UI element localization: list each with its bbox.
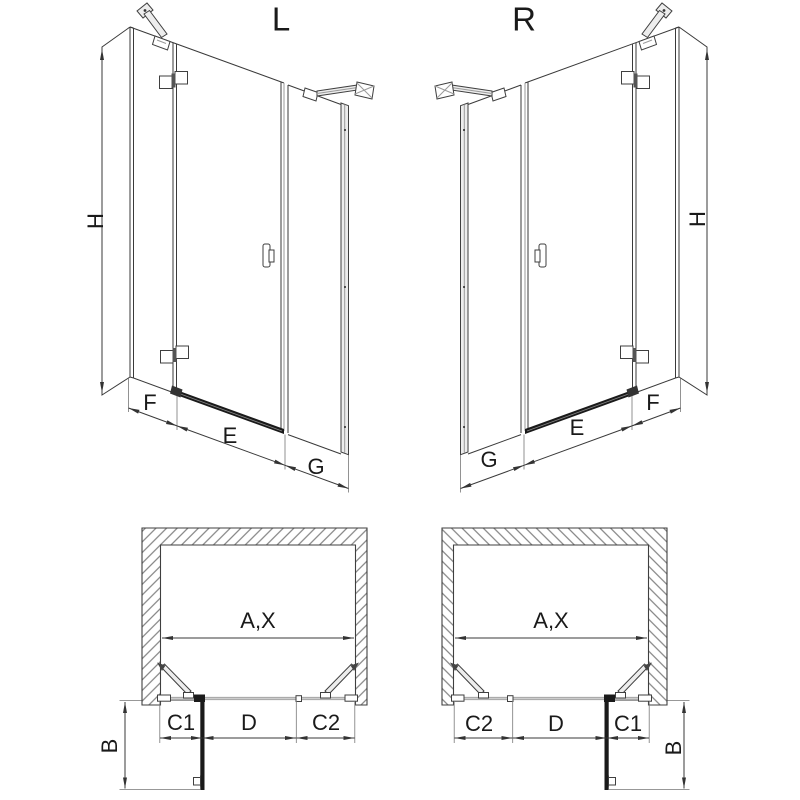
plan-right-drawing bbox=[442, 528, 690, 790]
dim-label-d-plan-right: D bbox=[548, 713, 564, 735]
plan-left-drawing bbox=[120, 528, 368, 790]
dim-label-b-plan-right: B bbox=[663, 741, 685, 756]
dim-label-c1-plan-right: C1 bbox=[614, 713, 642, 735]
dim-label-g-right: G bbox=[480, 449, 497, 471]
dim-label-e-right: E bbox=[570, 417, 585, 439]
dim-label-d-plan-left: D bbox=[241, 712, 257, 734]
dim-label-g-left: G bbox=[307, 456, 324, 478]
dim-label-c1-plan-left: C1 bbox=[167, 712, 195, 734]
elevation-right-title: R bbox=[512, 3, 536, 36]
dim-label-e-left: E bbox=[223, 425, 238, 447]
dim-label-ax-plan-right: A,X bbox=[533, 610, 568, 632]
dim-label-f-left: F bbox=[143, 392, 156, 414]
dim-label-b-plan-left: B bbox=[99, 739, 121, 754]
elevation-left-drawing bbox=[102, 3, 374, 493]
elevation-left-title: L bbox=[272, 3, 290, 36]
dim-label-ax-plan-left: A,X bbox=[240, 610, 275, 632]
dim-label-c2-plan-right: C2 bbox=[465, 713, 493, 735]
dim-label-c2-plan-left: C2 bbox=[312, 712, 340, 734]
shower-enclosure-dimension-diagram: L H F E G R H G E F A,X C1 D C2 B A,X C2… bbox=[0, 0, 800, 800]
dim-label-f-right: F bbox=[646, 392, 659, 414]
dim-label-height-right: H bbox=[687, 211, 709, 227]
dim-label-height-left: H bbox=[85, 213, 107, 229]
technical-drawing-canvas bbox=[0, 0, 800, 800]
